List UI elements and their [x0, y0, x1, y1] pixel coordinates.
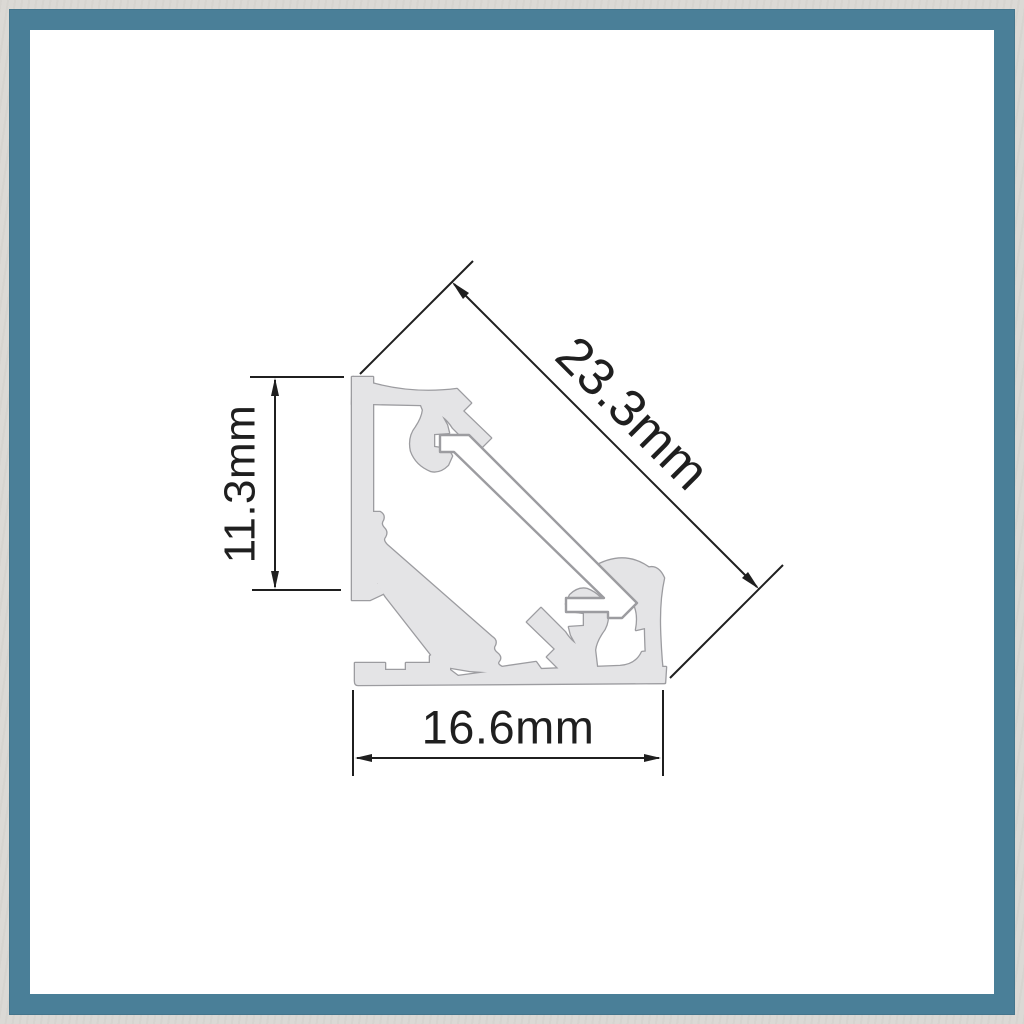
diagonal-extension-line-bottom	[670, 565, 783, 678]
width-dimension-label: 16.6mm	[422, 700, 595, 753]
height-dimension-label: 11.3mm	[216, 405, 265, 564]
dimension-arrowhead	[271, 571, 279, 589]
diagonal-dimension-label: 23.3mm	[544, 326, 720, 502]
dimension-arrowhead	[355, 754, 372, 762]
dimension-arrowhead	[271, 378, 279, 396]
diagonal-extension-line-top	[360, 261, 473, 374]
diffuser-cover	[440, 435, 637, 618]
dimension-arrowhead	[644, 754, 661, 762]
diagonal-dimension-line	[454, 284, 757, 587]
profile-cross-section-diagram: 11.3mm 23.3mm 16.6mm	[0, 0, 1024, 1024]
